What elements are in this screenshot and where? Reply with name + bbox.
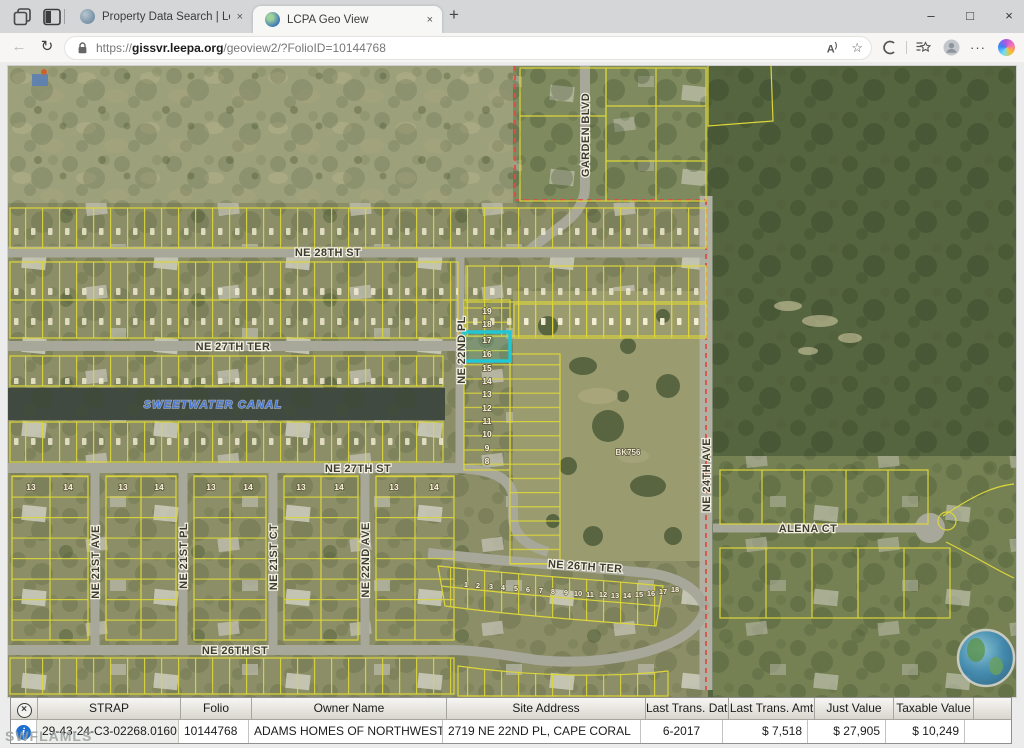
label-ne-22nd-pl: NE 22ND PL — [456, 316, 468, 384]
collections-icon[interactable] — [915, 36, 931, 58]
swflamls-watermark: SWFLAMLS — [5, 728, 92, 744]
svg-text:14: 14 — [623, 591, 632, 600]
svg-text:10: 10 — [482, 429, 492, 439]
svg-text:2: 2 — [476, 581, 480, 590]
cell-last-trans-amt: $ 7,518 — [723, 720, 808, 743]
col-filler — [974, 698, 1011, 720]
col-taxable-value: Taxable Value — [894, 698, 974, 720]
parcel-attribute-table: × STRAP Folio Owner Name Site Address La… — [10, 697, 1012, 744]
read-aloud-icon[interactable]: A) — [827, 41, 838, 56]
address-bar[interactable]: https://gissvr.leepa.org/geoview2/?Folio… — [64, 36, 872, 60]
svg-text:18: 18 — [671, 585, 679, 594]
refresh-button[interactable]: ↻ — [36, 36, 58, 58]
label-ne-24th-ave: NE 24TH AVE — [701, 438, 713, 512]
svg-text:16: 16 — [647, 589, 655, 598]
favorite-star-icon[interactable]: ☆ — [851, 40, 863, 56]
label-garden-blvd: GARDEN BLVD — [580, 93, 592, 177]
workspaces-icon[interactable] — [13, 8, 33, 26]
tab-divider — [64, 9, 65, 24]
window-minimize-button[interactable]: – — [916, 2, 946, 30]
label-ne-28th-st: NE 28TH ST — [295, 247, 361, 259]
svg-text:14: 14 — [429, 482, 439, 492]
col-just-value: Just Value — [815, 698, 894, 720]
back-button[interactable]: ← — [8, 36, 30, 58]
svg-text:3: 3 — [489, 582, 493, 591]
svg-text:1: 1 — [464, 580, 468, 589]
svg-text:5: 5 — [514, 584, 518, 593]
toolbar-divider — [906, 41, 907, 54]
tab-title: Property Data Search | Lee Count — [102, 11, 230, 23]
svg-text:14: 14 — [334, 482, 344, 492]
col-last-trans-date: Last Trans. Date — [646, 698, 729, 720]
svg-text:12: 12 — [599, 590, 607, 599]
svg-text:15: 15 — [482, 363, 492, 373]
svg-text:8: 8 — [485, 456, 490, 466]
cell-taxable-value: $ 10,249 — [886, 720, 965, 743]
col-owner-name: Owner Name — [252, 698, 447, 720]
svg-text:11: 11 — [586, 590, 594, 599]
tab-property-data-search[interactable]: Property Data Search | Lee Count × — [70, 0, 252, 33]
svg-text:9: 9 — [485, 443, 490, 453]
label-ne-27th-ter: NE 27TH TER — [196, 341, 271, 353]
svg-text:14: 14 — [243, 482, 253, 492]
geoview-page: 19 18 17 16 15 14 13 12 11 10 9 8 13 14 … — [0, 62, 1024, 748]
tab-title: LCPA Geo View — [287, 14, 420, 26]
browser-tab-bar: Property Data Search | Lee Count × LCPA … — [0, 0, 1024, 33]
label-parcel-block: BK756 — [616, 448, 641, 457]
globe-logo — [958, 630, 1014, 686]
profile-avatar[interactable] — [943, 36, 960, 58]
svg-text:13: 13 — [611, 591, 619, 600]
svg-text:13: 13 — [482, 389, 492, 399]
cell-owner-name: ADAMS HOMES OF NORTHWEST FLORI — [249, 720, 443, 743]
label-ne-21st-ct: NE 21ST CT — [268, 524, 280, 590]
label-sweetwater-canal: SWEETWATER CANAL — [144, 399, 283, 411]
close-tab-icon[interactable]: × — [427, 14, 433, 26]
tab-lcpa-geo-view[interactable]: LCPA Geo View × — [253, 6, 442, 33]
geoview-favicon — [265, 12, 280, 27]
browser-essentials-icon[interactable] — [882, 36, 897, 58]
svg-text:13: 13 — [26, 482, 36, 492]
svg-text:16: 16 — [482, 349, 492, 359]
leepa-favicon — [80, 9, 95, 24]
settings-menu-icon[interactable]: ··· — [970, 36, 986, 58]
cell-last-trans-date: 6-2017 — [641, 720, 723, 743]
browser-toolbar: ← ↻ https://gissvr.leepa.org/geoview2/?F… — [0, 33, 1024, 63]
label-alena-ct: ALENA CT — [779, 523, 837, 535]
svg-text:7: 7 — [539, 586, 543, 595]
svg-text:8: 8 — [551, 587, 555, 596]
svg-text:14: 14 — [154, 482, 164, 492]
label-ne-26th-st: NE 26TH ST — [202, 645, 268, 657]
cell-folio: 10144768 — [179, 720, 249, 743]
svg-text:11: 11 — [483, 416, 492, 426]
url-path: /geoview2/?FolioID=10144768 — [223, 41, 385, 55]
svg-text:12: 12 — [482, 403, 492, 413]
svg-text:17: 17 — [482, 335, 492, 345]
tab-layout-icon[interactable] — [42, 8, 62, 26]
svg-text:13: 13 — [118, 482, 128, 492]
svg-text:13: 13 — [206, 482, 216, 492]
geo-map[interactable]: 19 18 17 16 15 14 13 12 11 10 9 8 13 14 … — [8, 66, 1016, 697]
new-tab-button[interactable]: + — [449, 5, 459, 25]
close-tab-icon[interactable]: × — [237, 11, 243, 23]
cell-site-address: 2719 NE 22ND PL, CAPE CORAL — [443, 720, 641, 743]
svg-text:6: 6 — [526, 585, 530, 594]
label-ne-22nd-ave: NE 22ND AVE — [360, 522, 372, 597]
url-host: gissvr.leepa.org — [132, 41, 223, 55]
window-close-button[interactable]: × — [994, 2, 1024, 30]
lock-icon — [77, 42, 88, 55]
window-maximize-button[interactable]: □ — [955, 2, 985, 30]
svg-text:15: 15 — [635, 590, 643, 599]
url-scheme: https:// — [96, 41, 132, 55]
svg-text:10: 10 — [574, 589, 582, 598]
label-ne-21st-ave: NE 21ST AVE — [90, 525, 102, 598]
svg-text:13: 13 — [389, 482, 399, 492]
svg-text:9: 9 — [564, 588, 568, 597]
close-table-button[interactable]: × — [11, 698, 38, 720]
label-ne-27th-st: NE 27TH ST — [325, 463, 391, 475]
col-strap: STRAP — [38, 698, 181, 720]
svg-text:17: 17 — [659, 587, 667, 596]
cell-just-value: $ 27,905 — [808, 720, 886, 743]
svg-text:18: 18 — [482, 319, 492, 329]
svg-text:14: 14 — [482, 376, 492, 386]
cell-filler — [965, 720, 1011, 743]
col-site-address: Site Address — [447, 698, 646, 720]
svg-text:13: 13 — [296, 482, 306, 492]
close-icon: × — [17, 703, 32, 718]
svg-text:19: 19 — [482, 306, 492, 316]
label-ne-21st-pl: NE 21ST PL — [178, 523, 190, 589]
copilot-icon[interactable] — [998, 36, 1015, 58]
svg-text:14: 14 — [63, 482, 73, 492]
table-header-row: × STRAP Folio Owner Name Site Address La… — [11, 698, 1011, 720]
col-folio: Folio — [181, 698, 252, 720]
col-last-trans-amt: Last Trans. Amt — [729, 698, 815, 720]
table-row[interactable]: i 29-43-24-C3-02268.0160 10144768 ADAMS … — [11, 720, 1011, 743]
